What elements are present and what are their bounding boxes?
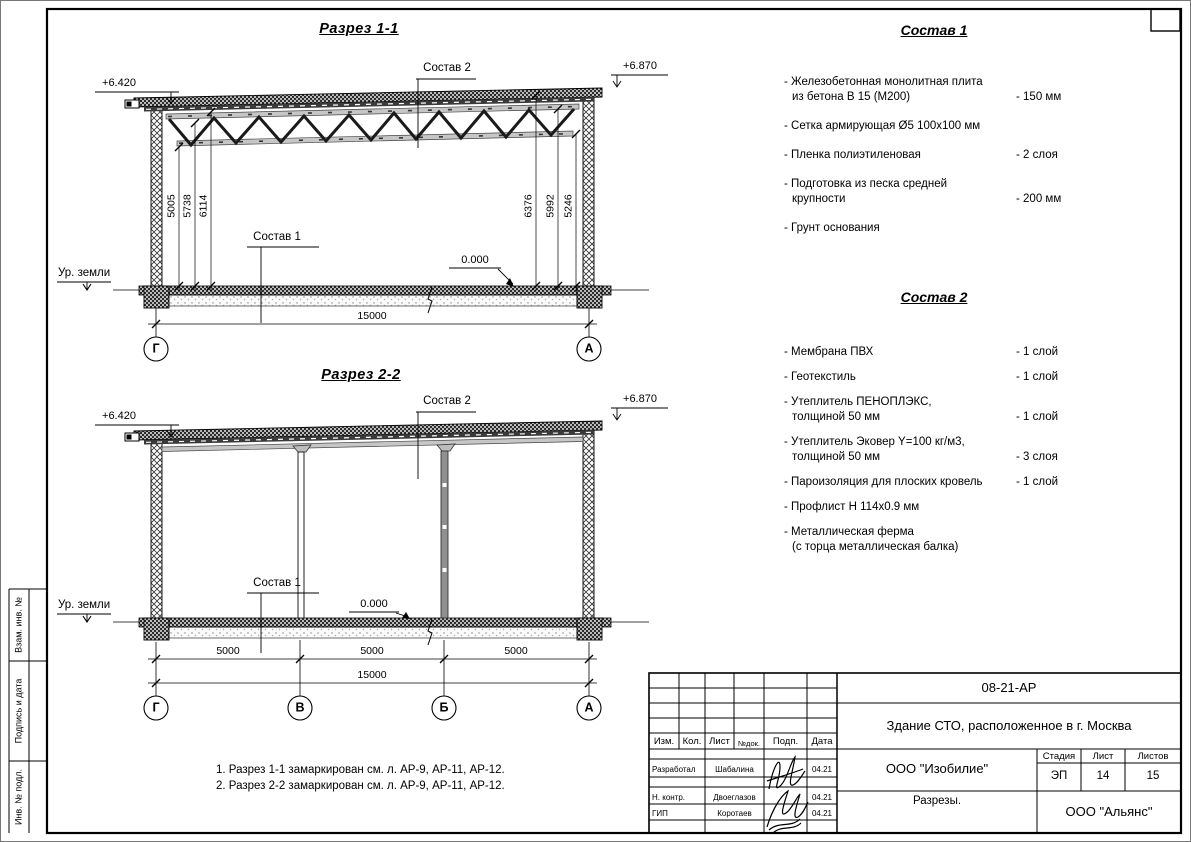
tb-stage-value: ЭП — [1037, 770, 1081, 783]
section1-sostav1-label: Состав 1 — [247, 231, 307, 244]
item-text: - Металлическая ферма — [784, 525, 1016, 540]
list-item: - Грунт основания — [784, 221, 1084, 236]
item-value: - 1 слой — [1016, 345, 1084, 360]
axis-bubble-g: Г — [152, 702, 159, 715]
item-value: - 1 слой — [1016, 370, 1084, 385]
tb-role: ГИП — [652, 807, 668, 820]
section1-elevation-left: +6.420 — [93, 77, 145, 90]
notes: 1. Разрез 1-1 замаркирован см. л. АР-9, … — [216, 762, 505, 794]
tb-col-data: Дата — [807, 735, 837, 748]
axis-bubble-g: Г — [152, 343, 159, 356]
item-text: - Железобетонная монолитная плита — [784, 75, 1016, 90]
item-text: - Грунт основания — [784, 221, 1016, 236]
dim-label-total: 15000 — [342, 310, 402, 323]
axis-bubble-a: А — [584, 702, 593, 715]
tb-doc-number: 08-21-АР — [837, 681, 1181, 694]
tb-col-list: Лист — [705, 735, 734, 748]
item-text: - Мембрана ПВХ — [784, 345, 1016, 360]
list-item: - Профлист Н 114х0.9 мм — [784, 500, 1084, 515]
item-text: крупности — [784, 192, 1016, 207]
list-item: - Утеплитель ПЕНОПЛЭКС,толщиной 50 мм - … — [784, 395, 1084, 425]
stamp-label-podpis: Подпись и дата — [13, 679, 26, 744]
tb-role: Н. контр. — [652, 791, 685, 804]
tb-col-ndok: №док. — [734, 737, 764, 750]
item-text: - Утеплитель ПЕНОПЛЭКС, — [784, 395, 1016, 410]
tb-contractor-org: ООО "Альянс" — [1037, 805, 1181, 818]
roof-truss — [166, 104, 579, 146]
tb-date: 04.21 — [807, 807, 837, 820]
composition2-list: - Мембрана ПВХ - 1 слой - Геотекстиль - … — [784, 345, 1084, 565]
section2-elevation-left: +6.420 — [93, 410, 145, 423]
axis-bubble-v: В — [295, 702, 304, 715]
stamp-label-vzam: Взам. инв. № — [13, 597, 26, 653]
axis-bubble-b: Б — [440, 702, 449, 715]
axis-bubble-a: А — [584, 343, 593, 356]
item-value: - 1 слой — [1016, 410, 1084, 425]
tb-col-podp: Подп. — [764, 735, 807, 748]
tb-sheet-label: Лист — [1081, 750, 1125, 763]
list-item: - Утеплитель Эковер Y=100 кг/м3,толщиной… — [784, 435, 1084, 465]
section2-elevation-right: +6.870 — [613, 393, 667, 406]
tb-stage-label: Стадия — [1037, 750, 1081, 763]
dim-label: 5005 — [166, 194, 179, 217]
item-value: - 150 мм — [1016, 90, 1084, 105]
dim-label: 6114 — [198, 195, 211, 218]
item-value: - 3 слоя — [1016, 450, 1084, 465]
list-item: - Железобетонная монолитная плитаиз бето… — [784, 75, 1084, 105]
note-line: 1. Разрез 1-1 замаркирован см. л. АР-9, … — [216, 762, 505, 778]
item-text: - Пароизоляция для плоских кровель — [784, 475, 1016, 490]
item-text: - Пленка полиэтиленовая — [784, 148, 1016, 163]
tb-name: Шабалина — [705, 763, 764, 776]
dim-label: 5000 — [198, 645, 258, 658]
item-text: - Утеплитель Эковер Y=100 кг/м3, — [784, 435, 1016, 450]
tb-sheets-label: Листов — [1125, 750, 1181, 763]
list-item: - Пленка полиэтиленовая - 2 слоя — [784, 148, 1084, 163]
tb-sheet-name: Разрезы. — [837, 795, 1037, 808]
dim-label-total: 15000 — [342, 669, 402, 682]
tb-role: Разработал — [652, 763, 696, 776]
item-value: - 2 слоя — [1016, 148, 1084, 163]
dim-label: 5246 — [563, 194, 576, 217]
item-text: - Сетка армирующая Ø5 100х100 мм — [784, 119, 1016, 134]
composition1-title: Состав 1 — [874, 24, 994, 37]
list-item: - Сетка армирующая Ø5 100х100 мм — [784, 119, 1084, 134]
list-item: - Мембрана ПВХ - 1 слой — [784, 345, 1084, 360]
column-axis-v — [293, 445, 311, 618]
section1-title: Разрез 1-1 — [301, 23, 417, 36]
tb-date: 04.21 — [807, 791, 837, 804]
item-value: - 200 мм — [1016, 192, 1084, 207]
tb-col-kol: Кол. — [679, 735, 705, 748]
tb-name: Двоеглазов — [705, 791, 764, 804]
section2-ground-label: Ур. земли — [58, 599, 110, 612]
item-text: - Подготовка из песка средней — [784, 177, 1016, 192]
section2-title: Разрез 2-2 — [303, 369, 419, 382]
dim-label: 5992 — [545, 194, 558, 217]
section1-elevation-right: +6.870 — [613, 60, 667, 73]
composition1-list: - Железобетонная монолитная плитаиз бето… — [784, 75, 1084, 250]
signature-strokes — [767, 757, 808, 833]
corner-box — [1151, 9, 1180, 31]
tb-col-izm: Изм. — [649, 735, 679, 748]
tb-sheet-value: 14 — [1081, 770, 1125, 783]
column-axis-b — [437, 444, 455, 618]
item-text: (с торца металлическая балка) — [784, 540, 1016, 555]
item-text: - Геотекстиль — [784, 370, 1016, 385]
list-item: - Металлическая ферма(с торца металличес… — [784, 525, 1084, 555]
tb-name: Коротаев — [705, 807, 764, 820]
section1-sostav2-label: Состав 2 — [417, 62, 477, 75]
composition2-title: Состав 2 — [874, 291, 994, 304]
section2-sostav1-label: Состав 1 — [247, 577, 307, 590]
item-value: - 1 слой — [1016, 475, 1084, 490]
list-item: - Подготовка из песка среднейкрупности -… — [784, 177, 1084, 207]
tb-project-name: Здание СТО, расположенное в г. Москва — [841, 719, 1177, 732]
note-line: 2. Разрез 2-2 замаркирован см. л. АР-9, … — [216, 778, 505, 794]
stamp-label-inv: Инв. № подл. — [13, 769, 26, 825]
tb-designer-org: ООО "Изобилие" — [837, 762, 1037, 775]
item-text: - Профлист Н 114х0.9 мм — [784, 500, 1016, 515]
section1-ground-label: Ур. земли — [58, 267, 110, 280]
item-text: из бетона В 15 (М200) — [784, 90, 1016, 105]
tb-sheets-value: 15 — [1125, 770, 1181, 783]
section1-zero-level: 0.000 — [450, 254, 500, 267]
section2-sostav2-label: Состав 2 — [417, 395, 477, 408]
dim-label: 6376 — [523, 194, 536, 217]
drawing-sheet: Взам. инв. № Подпись и дата Инв. № подл.… — [0, 0, 1191, 842]
dim-label: 5000 — [342, 645, 402, 658]
dim-label: 5738 — [182, 194, 195, 217]
list-item: - Геотекстиль - 1 слой — [784, 370, 1084, 385]
item-text: толщиной 50 мм — [784, 410, 1016, 425]
item-text: толщиной 50 мм — [784, 450, 1016, 465]
tb-date: 04.21 — [807, 763, 837, 776]
section2-zero-level: 0.000 — [349, 598, 399, 611]
dim-label: 5000 — [486, 645, 546, 658]
list-item: - Пароизоляция для плоских кровель - 1 с… — [784, 475, 1084, 490]
